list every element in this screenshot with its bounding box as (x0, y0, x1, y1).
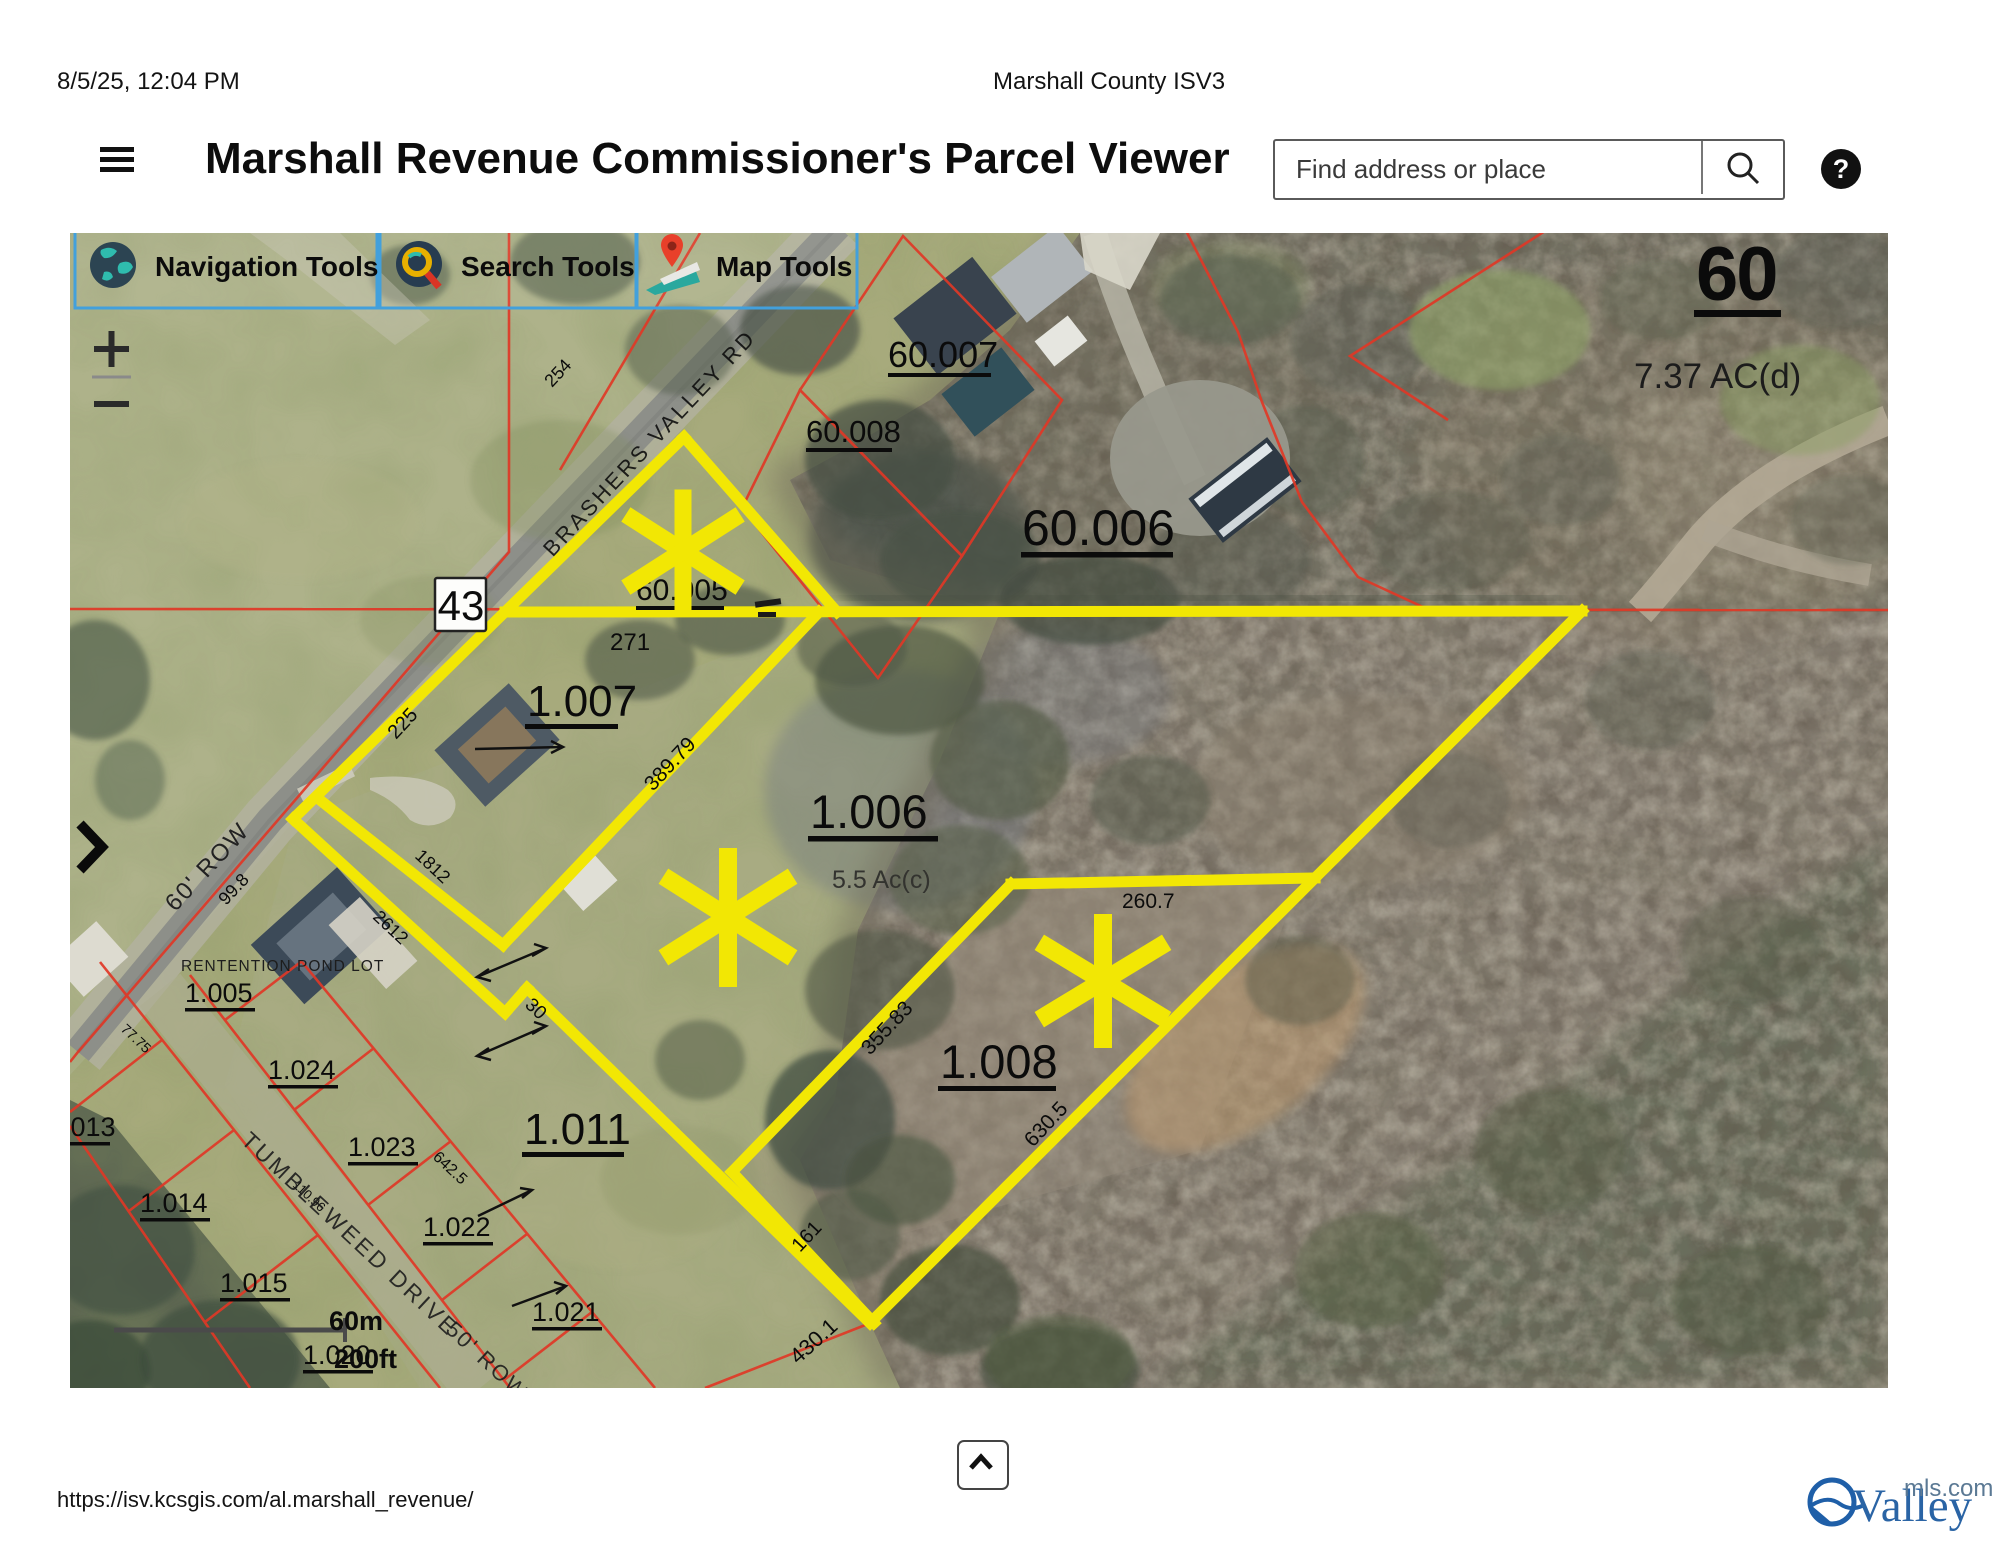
svg-text:1.021: 1.021 (532, 1297, 600, 1327)
svg-text:mls.com: mls.com (1904, 1475, 1993, 1502)
svg-text:1.022: 1.022 (423, 1212, 491, 1242)
svg-text:1.008: 1.008 (940, 1035, 1058, 1088)
svg-text:1.006: 1.006 (810, 785, 928, 838)
svg-text:200ft: 200ft (334, 1344, 397, 1374)
svg-text:1.011: 1.011 (524, 1105, 631, 1154)
svg-text:Search Tools: Search Tools (461, 251, 635, 282)
svg-text:7.37 AC(d): 7.37 AC(d) (1634, 357, 1801, 396)
svg-text:1.013: 1.013 (70, 1112, 116, 1142)
svg-text:1.024: 1.024 (268, 1055, 336, 1085)
svg-text:43: 43 (438, 582, 485, 629)
svg-text:1.015: 1.015 (220, 1268, 288, 1298)
svg-text:1.005: 1.005 (185, 978, 253, 1008)
svg-text:1.014: 1.014 (140, 1188, 208, 1218)
svg-text:5.5 Ac(c): 5.5 Ac(c) (832, 866, 931, 894)
svg-text:60m: 60m (329, 1306, 383, 1336)
svg-text:60.008: 60.008 (806, 414, 901, 449)
svg-text:271: 271 (610, 629, 650, 656)
svg-text:RENTENTION POND LOT: RENTENTION POND LOT (181, 958, 384, 975)
svg-text:Navigation Tools: Navigation Tools (155, 251, 379, 282)
svg-text:60.006: 60.006 (1022, 500, 1175, 556)
svg-text:260.7: 260.7 (1122, 890, 1175, 913)
svg-text:1.023: 1.023 (348, 1132, 416, 1162)
svg-text:60.007: 60.007 (888, 334, 998, 375)
svg-text:1.007: 1.007 (527, 677, 637, 726)
svg-text:Map Tools: Map Tools (716, 251, 852, 282)
svg-text:60: 60 (1696, 233, 1777, 317)
svg-text:?: ? (1833, 154, 1850, 184)
